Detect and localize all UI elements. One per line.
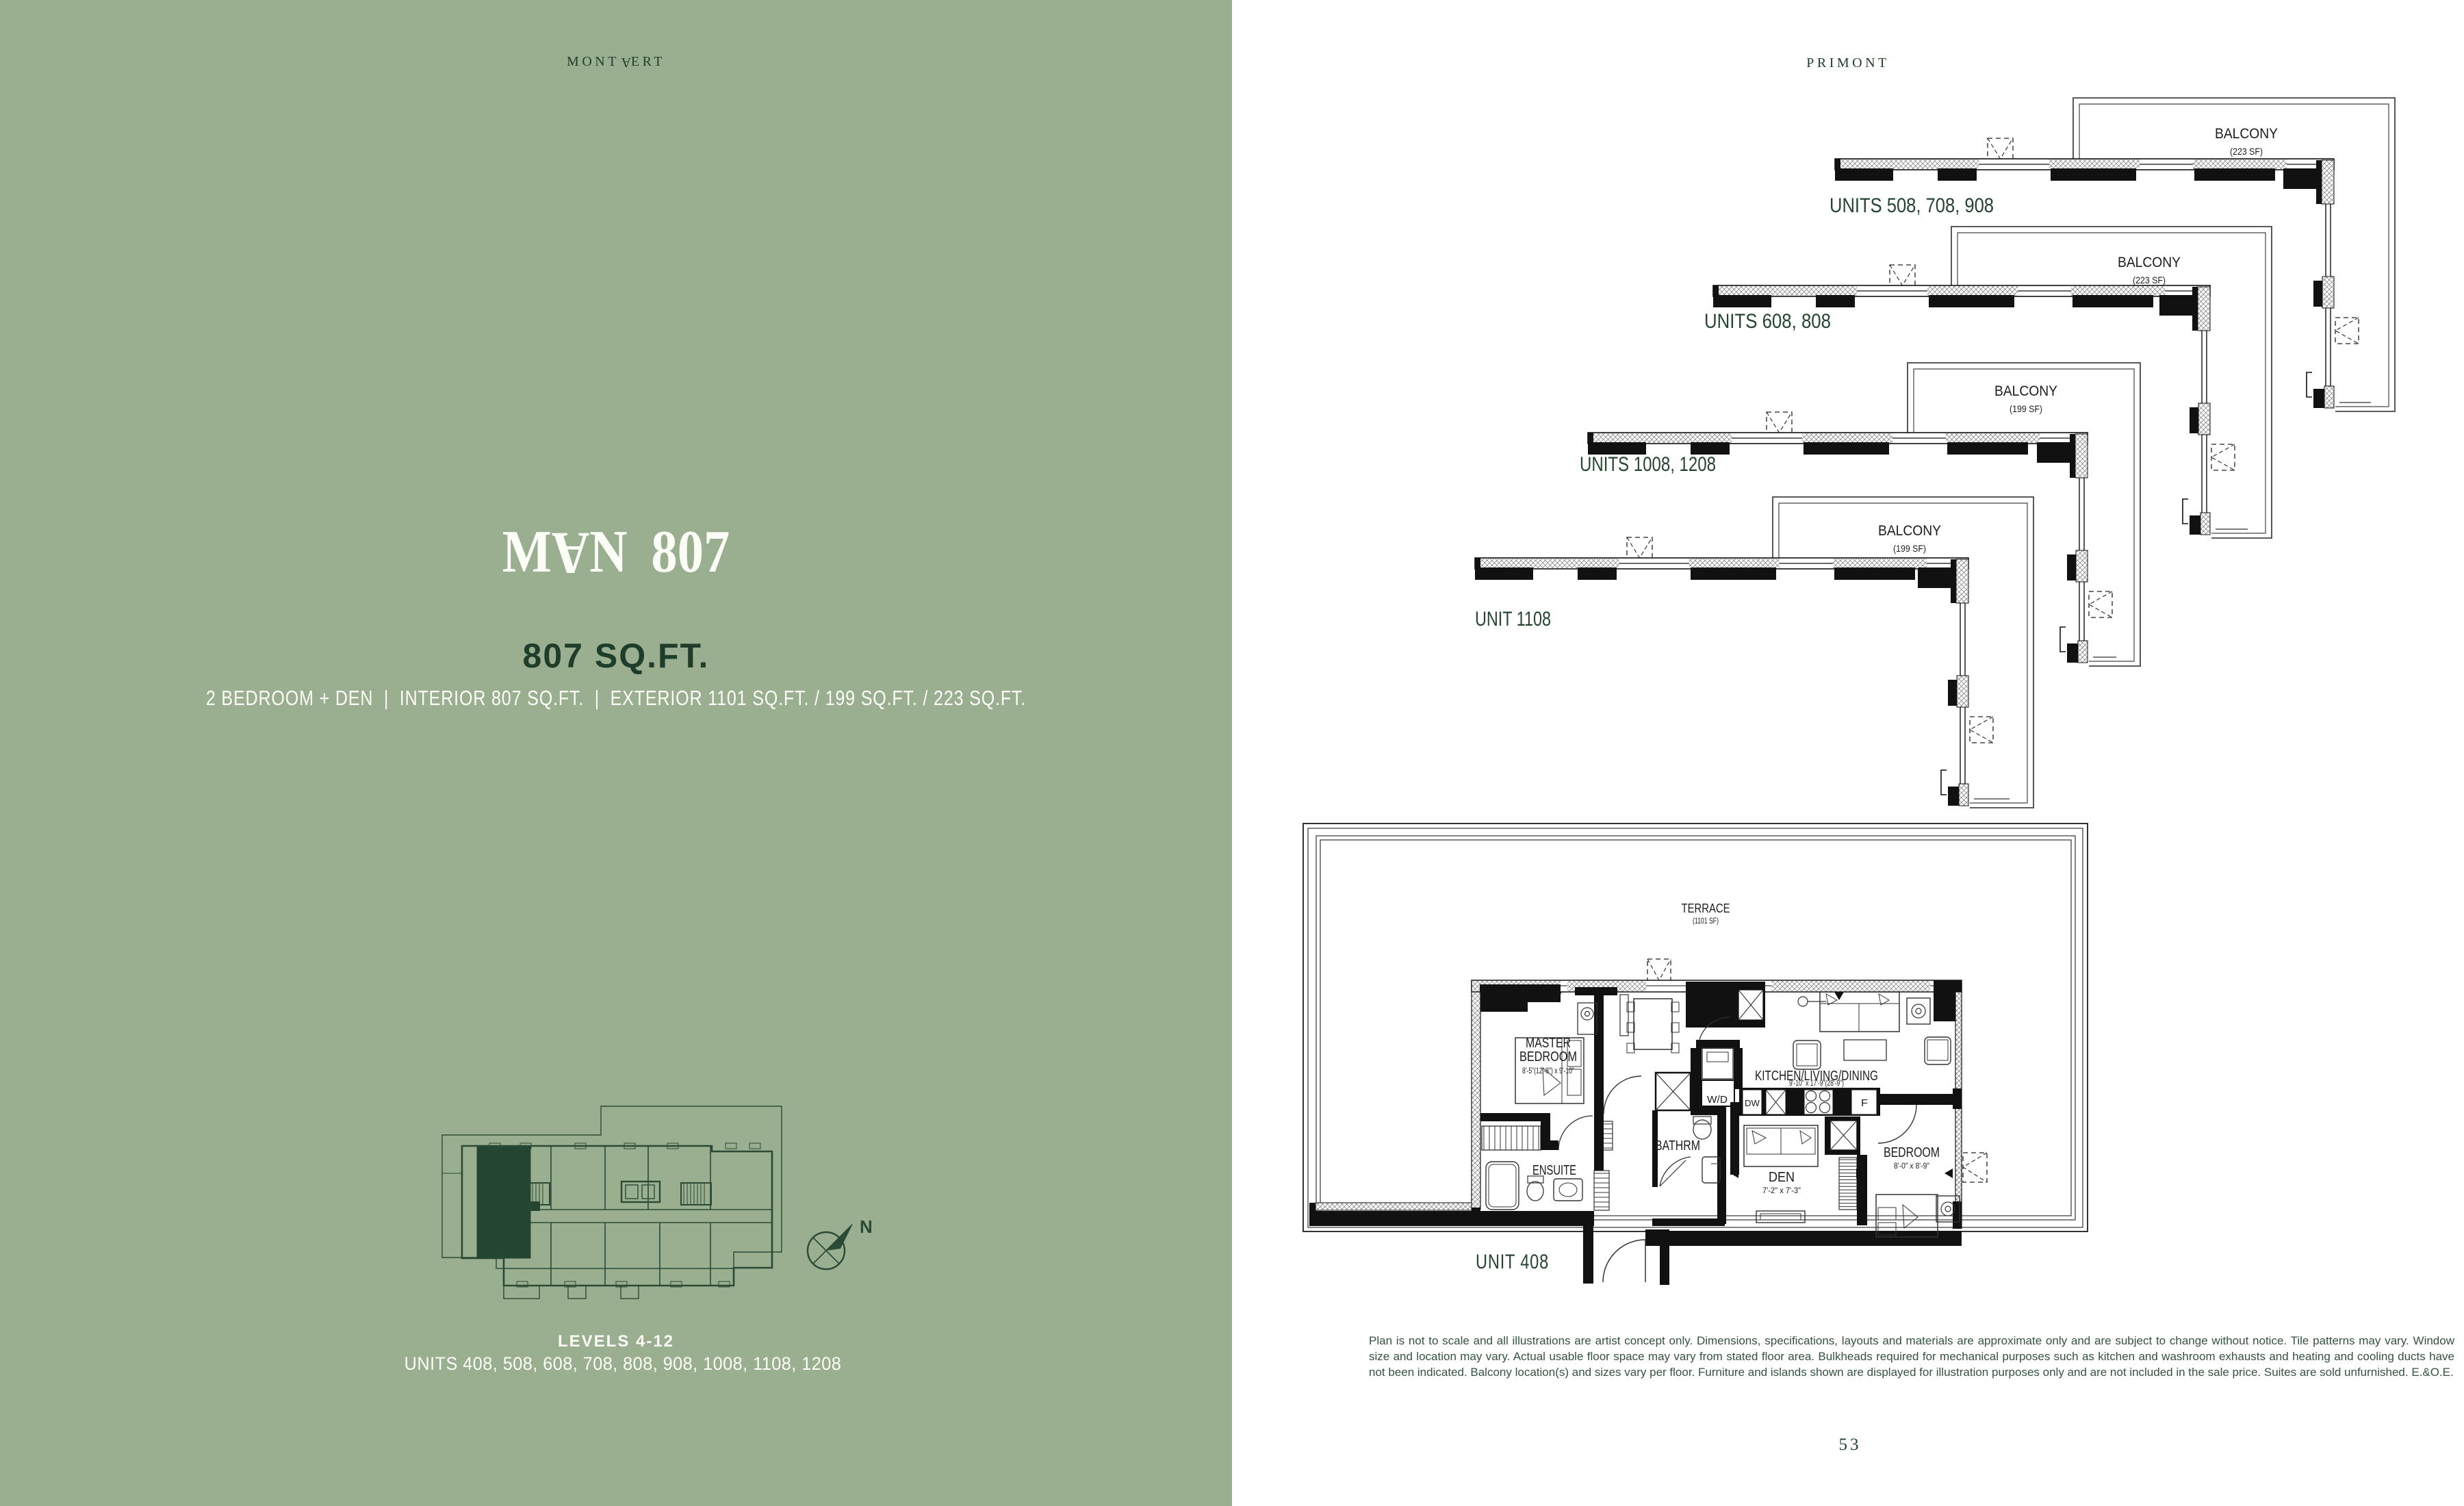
svg-text:8'-5"(12'-8") x 9'-10": 8'-5"(12'-8") x 9'-10" bbox=[1522, 1066, 1574, 1075]
svg-text:UNITS 508, 708, 908: UNITS 508, 708, 908 bbox=[1830, 194, 1994, 217]
svg-text:(1101 SF): (1101 SF) bbox=[1693, 916, 1719, 926]
svg-text:9'-10" x 17'-9"(28'-9"): 9'-10" x 17'-9"(28'-9") bbox=[1789, 1078, 1844, 1088]
svg-text:BALCONY: BALCONY bbox=[1878, 523, 1941, 539]
svg-text:DEN: DEN bbox=[1769, 1170, 1795, 1185]
svg-text:MASTER: MASTER bbox=[1526, 1036, 1571, 1051]
svg-text:(223 SF): (223 SF) bbox=[2230, 146, 2263, 157]
svg-text:BALCONY: BALCONY bbox=[2215, 126, 2278, 142]
svg-text:BEDROOM: BEDROOM bbox=[1884, 1145, 1940, 1160]
svg-text:BATHRM: BATHRM bbox=[1655, 1138, 1700, 1153]
svg-text:8'-0" x 8'-9": 8'-0" x 8'-9" bbox=[1894, 1161, 1929, 1171]
svg-text:7'-2" x 7'-3": 7'-2" x 7'-3" bbox=[1762, 1186, 1801, 1195]
svg-text:BEDROOM: BEDROOM bbox=[1519, 1049, 1577, 1064]
svg-text:ENSUITE: ENSUITE bbox=[1532, 1163, 1576, 1178]
svg-text:F: F bbox=[1861, 1097, 1868, 1109]
svg-text:TERRACE: TERRACE bbox=[1682, 902, 1730, 915]
svg-text:UNIT 1108: UNIT 1108 bbox=[1475, 608, 1551, 630]
svg-text:(199 SF): (199 SF) bbox=[1893, 543, 1926, 554]
svg-text:BALCONY: BALCONY bbox=[2118, 255, 2181, 270]
svg-text:(223 SF): (223 SF) bbox=[2133, 275, 2166, 285]
svg-text:UNIT 408: UNIT 408 bbox=[1476, 1251, 1549, 1273]
svg-text:UNITS 608, 808: UNITS 608, 808 bbox=[1704, 310, 1831, 333]
svg-text:BALCONY: BALCONY bbox=[1994, 383, 2057, 399]
svg-text:DW: DW bbox=[1745, 1098, 1760, 1108]
svg-text:(199 SF): (199 SF) bbox=[2010, 403, 2042, 414]
svg-text:UNITS 1008, 1208: UNITS 1008, 1208 bbox=[1580, 453, 1716, 476]
svg-text:W/D: W/D bbox=[1707, 1094, 1728, 1106]
